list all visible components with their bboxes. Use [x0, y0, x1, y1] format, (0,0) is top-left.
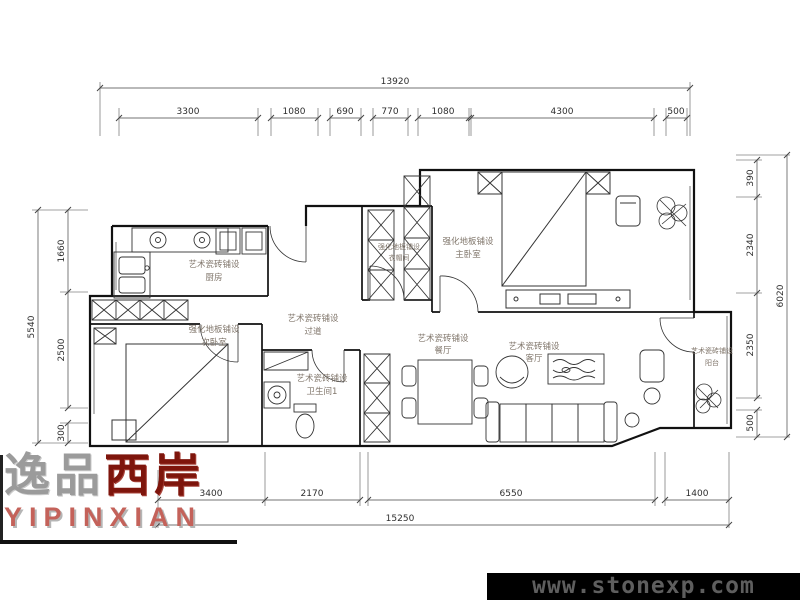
label-master-finish: 强化地板铺设 [442, 236, 494, 247]
dim-left-seg-1: 2500 [57, 338, 67, 361]
label-dining-name: 餐厅 [434, 346, 452, 356]
watermark-url: www.stonexp.com [487, 573, 800, 600]
living-furniture [486, 350, 664, 442]
dim-right-seg-0: 390 [746, 169, 756, 186]
logo-cn-red: 西岸 [104, 448, 204, 502]
label-balcony-finish: 艺术瓷砖铺设 [691, 346, 733, 355]
label-living-finish: 艺术瓷砖铺设 [508, 341, 560, 352]
logo-cn-gray: 逸品 [4, 448, 104, 502]
dim-top-overall: 13920 [381, 77, 410, 87]
dim-right-overall: 6020 [776, 284, 786, 307]
logo-chinese-text: 逸品西岸 [4, 450, 240, 500]
label-bathroom-finish: 艺术瓷砖铺设 [296, 373, 348, 384]
dining-set [364, 354, 488, 442]
label-closet-finish: 强化地板铺设 [378, 242, 420, 251]
logo-left-border [0, 455, 3, 544]
label-master-name: 主卧室 [455, 249, 481, 260]
dim-left-overall: 5540 [27, 315, 37, 338]
label-bedroom2-name: 次卧室 [201, 337, 227, 348]
dim-right-seg-1: 2340 [746, 233, 756, 256]
outer-walls [90, 170, 731, 446]
label-closet-name: 衣帽间 [389, 253, 410, 262]
corridor-wardrobe [92, 300, 188, 320]
dim-top-seg-4: 1080 [432, 107, 455, 117]
label-bathroom-name: 卫生间1 [307, 386, 338, 397]
dim-bottom-seg-3: 1400 [686, 489, 709, 499]
dim-right-seg-2: 2350 [746, 333, 756, 356]
window-lines [94, 186, 727, 424]
dim-right-seg-3: 500 [746, 414, 756, 431]
label-dining-finish: 艺术瓷砖铺设 [417, 333, 469, 344]
master-plant [657, 197, 687, 229]
label-kitchen-finish: 艺术瓷砖铺设 [188, 259, 240, 270]
dim-top-seg-3: 770 [381, 107, 398, 117]
dim-top-seg-2: 690 [336, 107, 353, 117]
dim-bottom-seg-1: 2170 [301, 489, 324, 499]
label-living-name: 客厅 [525, 353, 543, 364]
label-bedroom2-finish: 强化地板铺设 [188, 324, 240, 335]
logo-latin-text: YIPINXIAN [4, 502, 240, 533]
label-balcony-name: 阳台 [705, 358, 719, 367]
dim-left-seg-0: 1660 [57, 239, 67, 262]
label-hallway-finish: 艺术瓷砖铺设 [287, 313, 339, 324]
label-hallway-name: 过道 [304, 326, 322, 337]
dim-top-seg-1: 1080 [283, 107, 306, 117]
dim-top-seg-0: 3300 [177, 107, 200, 117]
logo-underline [0, 540, 237, 544]
door-swings [200, 226, 694, 382]
floor-plan-page: 13920 3300 1080 690 770 1080 4300 500 55… [0, 0, 800, 600]
dim-top-seg-6: 500 [667, 107, 684, 117]
dim-bottom-seg-2: 6550 [500, 489, 523, 499]
label-kitchen-name: 厨房 [205, 272, 222, 283]
dim-bottom-overall: 15250 [386, 514, 415, 524]
master-bed [478, 172, 640, 308]
dim-top-seg-5: 4300 [551, 107, 574, 117]
company-logo: 逸品西岸 YIPINXIAN [4, 450, 240, 533]
dim-left-seg-2: 300 [57, 424, 67, 441]
balcony-plant [696, 384, 721, 413]
